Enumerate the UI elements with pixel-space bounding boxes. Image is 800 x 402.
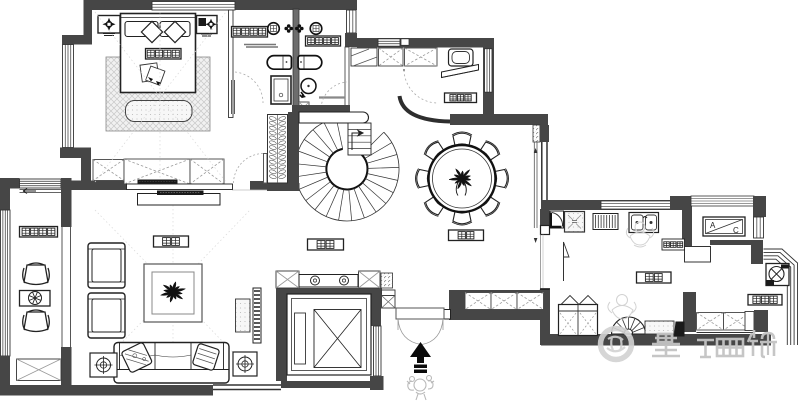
svg-text:A: A	[710, 221, 716, 230]
svg-text:C: C	[733, 226, 739, 235]
